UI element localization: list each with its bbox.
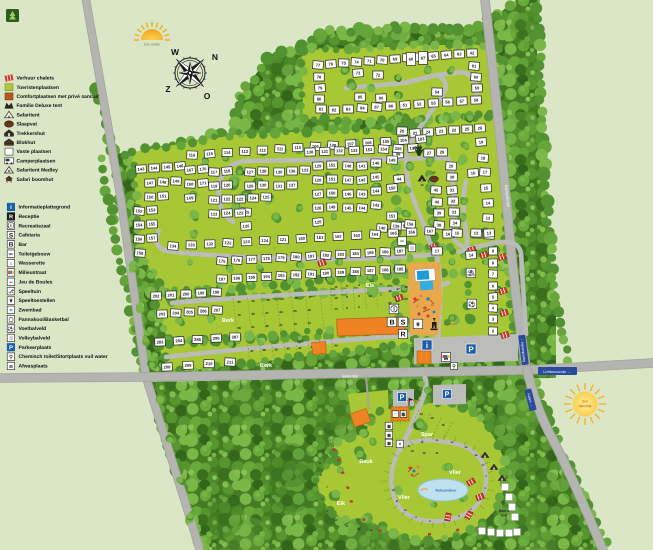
svg-text:Recreatiezaal: Recreatiezaal [19, 223, 52, 229]
svg-text:Toeristenplaatsen: Toeristenplaatsen [17, 85, 59, 91]
svg-text:Parkeerplaats: Parkeerplaats [19, 345, 52, 351]
svg-text:Natuurvijver: Natuurvijver [436, 489, 458, 493]
svg-text:142: 142 [358, 177, 366, 182]
svg-text:185: 185 [367, 250, 375, 255]
svg-text:284: 284 [175, 338, 183, 343]
svg-text:155: 155 [148, 221, 156, 226]
svg-text:Speeltoestellen: Speeltoestellen [19, 298, 56, 304]
svg-text:146: 146 [176, 163, 184, 169]
svg-text:●●: ●● [9, 280, 13, 284]
svg-text:78: 78 [317, 74, 322, 79]
svg-text:Eik: Eik [337, 501, 346, 507]
svg-text:Safari boomhut: Safari boomhut [17, 177, 54, 183]
svg-text:145: 145 [164, 164, 172, 169]
svg-text:160: 160 [298, 236, 306, 242]
svg-text:127: 127 [314, 191, 322, 196]
svg-text:24: 24 [279, 310, 283, 314]
svg-text:111: 111 [277, 146, 284, 151]
svg-text:123: 123 [236, 210, 244, 215]
svg-text:105: 105 [382, 139, 390, 144]
svg-text:187: 187 [367, 268, 375, 273]
svg-text:○: ○ [394, 412, 397, 417]
svg-text:S: S [9, 232, 14, 239]
svg-text:Safaritent: Safaritent [17, 112, 40, 118]
svg-text:56: 56 [445, 99, 450, 104]
svg-text:♕: ♕ [9, 298, 13, 303]
svg-text:152: 152 [329, 162, 337, 167]
svg-text:123: 123 [210, 211, 218, 216]
svg-text:285: 285 [194, 337, 202, 342]
svg-text:28: 28 [266, 298, 270, 302]
svg-text:141: 141 [358, 163, 366, 168]
svg-text:129: 129 [247, 183, 255, 188]
svg-text:209: 209 [184, 363, 192, 368]
svg-text:51: 51 [396, 299, 400, 303]
svg-text:130: 130 [260, 182, 268, 187]
svg-text:Volleybalveld: Volleybalveld [19, 336, 51, 342]
svg-text:ⓘ: ⓘ [391, 305, 398, 314]
svg-text:Vaste plaatsen: Vaste plaatsen [17, 149, 52, 155]
svg-text:178: 178 [263, 256, 271, 261]
svg-text:11: 11 [435, 451, 439, 455]
svg-text:200: 200 [183, 291, 191, 296]
svg-text:Speeltuin: Speeltuin [19, 289, 42, 295]
svg-text:155: 155 [395, 146, 403, 152]
svg-text:27: 27 [427, 150, 432, 155]
svg-text:42: 42 [432, 171, 436, 175]
svg-text:Verhuur chalets: Verhuur chalets [17, 76, 55, 82]
svg-text:⚲: ⚲ [452, 364, 456, 370]
svg-text:34: 34 [251, 299, 255, 303]
svg-text:177: 177 [248, 257, 256, 262]
svg-text:14: 14 [419, 412, 423, 416]
svg-text:194: 194 [263, 274, 271, 279]
svg-text:156: 156 [135, 236, 143, 241]
svg-text:Z: Z [165, 84, 170, 94]
svg-text:B: B [9, 242, 14, 249]
svg-text:121: 121 [210, 197, 218, 202]
svg-text:40: 40 [286, 347, 290, 351]
svg-text:R: R [9, 214, 13, 220]
svg-text:●●: ●● [400, 239, 404, 243]
svg-text:32: 32 [451, 198, 456, 203]
svg-text:186: 186 [382, 249, 390, 254]
svg-text:Spar: Spar [421, 432, 434, 438]
svg-text:26: 26 [412, 146, 416, 150]
svg-text:12: 12 [334, 296, 338, 300]
svg-text:151: 151 [329, 176, 337, 181]
svg-text:Rent a: Rent a [499, 509, 509, 513]
svg-text:Afwasplaats: Afwasplaats [19, 364, 48, 370]
svg-text:148: 148 [344, 163, 352, 168]
svg-text:125: 125 [262, 194, 270, 199]
svg-text:30: 30 [251, 312, 255, 316]
svg-text:36: 36 [237, 326, 241, 330]
svg-text:156: 156 [406, 221, 414, 227]
svg-text:195: 195 [248, 275, 256, 280]
svg-text:143: 143 [137, 166, 145, 171]
svg-text:147: 147 [147, 180, 155, 185]
svg-text:46: 46 [388, 289, 392, 293]
svg-text:18: 18 [307, 308, 311, 312]
svg-text:120: 120 [224, 182, 232, 187]
svg-text:82: 82 [332, 107, 337, 112]
svg-text:14: 14 [307, 321, 311, 325]
svg-text:80: 80 [317, 96, 322, 101]
svg-text:131: 131 [321, 149, 329, 154]
svg-text:168: 168 [186, 181, 194, 186]
svg-text:▢: ▢ [8, 317, 13, 323]
svg-text:Beuk: Beuk [359, 459, 373, 465]
svg-text:Berk: Berk [260, 363, 273, 369]
svg-text:Els: Els [366, 283, 374, 289]
svg-text:⚲: ⚲ [9, 354, 13, 360]
svg-text:39: 39 [437, 210, 442, 215]
svg-text:205: 205 [186, 309, 194, 314]
svg-text:114: 114 [224, 150, 231, 155]
svg-text:O: O [204, 91, 211, 101]
svg-text:179: 179 [278, 255, 286, 261]
svg-text:W: W [171, 47, 180, 57]
svg-text:128: 128 [260, 168, 268, 173]
svg-text:204: 204 [172, 310, 180, 315]
svg-text:59: 59 [475, 85, 480, 90]
svg-text:145: 145 [345, 205, 353, 210]
svg-text:Chemisch toilet/Stortplaats vu: Chemisch toilet/Stortplaats vuil water [19, 354, 108, 360]
svg-text:Berk: Berk [222, 318, 235, 324]
svg-text:P: P [9, 344, 13, 351]
svg-text:211: 211 [227, 359, 235, 364]
svg-text:104: 104 [400, 137, 408, 143]
svg-text:133: 133 [188, 242, 196, 247]
svg-text:39: 39 [274, 347, 278, 351]
svg-text:48: 48 [404, 285, 408, 289]
svg-text:283: 283 [157, 339, 165, 344]
svg-text:81: 81 [319, 106, 324, 111]
svg-text:▦: ▦ [387, 440, 391, 445]
svg-text:207: 207 [213, 307, 221, 312]
svg-text:175: 175 [218, 258, 226, 264]
svg-text:opkomst: opkomst [579, 404, 592, 408]
svg-text:23: 23 [280, 297, 284, 301]
svg-text:189: 189 [337, 270, 345, 275]
svg-text:72: 72 [376, 72, 381, 77]
svg-text:165: 165 [390, 231, 398, 236]
svg-text:180: 180 [293, 254, 301, 260]
svg-text:Comfortplaatsen met privé sani: Comfortplaatsen met privé sanitair [17, 94, 100, 100]
svg-text:i: i [426, 341, 428, 350]
svg-text:116: 116 [189, 152, 196, 157]
svg-text:183: 183 [337, 252, 345, 257]
svg-text:Slaapvat: Slaapvat [17, 122, 38, 128]
svg-text:22: 22 [452, 127, 457, 132]
svg-text:121: 121 [280, 237, 288, 242]
svg-text:191: 191 [307, 271, 315, 276]
svg-text:41: 41 [298, 346, 302, 350]
svg-text:P: P [468, 345, 474, 354]
svg-text:153: 153 [148, 207, 156, 212]
svg-text:▦: ▦ [387, 423, 391, 428]
svg-text:⚽: ⚽ [7, 325, 14, 332]
svg-text:119: 119 [211, 183, 219, 188]
svg-text:153: 153 [365, 147, 373, 152]
svg-text:146: 146 [373, 160, 381, 165]
svg-text:103: 103 [417, 136, 425, 142]
svg-text:47: 47 [396, 287, 400, 291]
svg-text:154: 154 [380, 146, 388, 152]
svg-text:Familie Deluxe tent: Familie Deluxe tent [17, 103, 63, 109]
svg-text:32: 32 [294, 296, 298, 300]
svg-text:133: 133 [302, 167, 310, 172]
svg-text:143: 143 [372, 202, 380, 207]
svg-text:167: 167 [426, 228, 434, 233]
svg-text:19: 19 [293, 322, 297, 326]
svg-text:🏐: 🏐 [9, 335, 14, 340]
svg-text:123: 123 [243, 239, 251, 244]
svg-text:⛱: ⛱ [467, 269, 475, 277]
svg-text:146: 146 [344, 191, 352, 196]
svg-text:117: 117 [211, 169, 219, 174]
svg-text:176: 176 [233, 257, 241, 263]
svg-text:169: 169 [186, 195, 194, 200]
svg-text:Toiletgebouw: Toiletgebouw [19, 251, 51, 257]
svg-text:67: 67 [421, 55, 426, 60]
svg-text:⎇: ⎇ [8, 289, 14, 295]
svg-text:63: 63 [457, 51, 462, 56]
svg-text:Camperplaatsen: Camperplaatsen [17, 158, 56, 164]
svg-text:Trekkershut: Trekkershut [17, 131, 46, 137]
svg-text:132: 132 [206, 241, 214, 246]
svg-text:110: 110 [294, 145, 302, 150]
svg-text:≌: ≌ [9, 364, 13, 370]
svg-text:Milieustraat: Milieustraat [19, 270, 47, 276]
svg-text:127: 127 [246, 169, 254, 174]
svg-text:152: 152 [135, 208, 143, 214]
svg-text:144: 144 [358, 205, 366, 211]
svg-text:150: 150 [388, 185, 396, 191]
svg-text:44: 44 [334, 343, 338, 347]
svg-text:27: 27 [265, 311, 269, 315]
svg-text:157: 157 [148, 235, 156, 240]
svg-text:139: 139 [392, 223, 400, 229]
svg-text:167: 167 [186, 167, 194, 173]
svg-text:⚽: ⚽ [467, 300, 476, 308]
svg-text:206: 206 [200, 308, 208, 313]
svg-text:17: 17 [308, 295, 312, 299]
svg-text:Zwembad: Zwembad [19, 307, 42, 313]
svg-text:112: 112 [259, 148, 266, 153]
svg-text:150: 150 [147, 194, 155, 199]
svg-text:11: 11 [334, 285, 338, 289]
svg-text:Vlier: Vlier [449, 470, 462, 476]
svg-text:208: 208 [163, 364, 171, 369]
svg-text:15: 15 [430, 416, 434, 420]
svg-text:P: P [400, 393, 405, 402]
svg-text:210: 210 [206, 361, 214, 366]
svg-text:107: 107 [347, 141, 355, 146]
svg-text:Cafetaria: Cafetaria [19, 233, 41, 239]
svg-text:25: 25 [465, 126, 470, 131]
svg-text:286: 286 [213, 336, 221, 341]
svg-text:170: 170 [199, 166, 207, 171]
svg-text:129: 129 [315, 163, 323, 168]
svg-text:○: ○ [9, 261, 12, 267]
svg-text:▦: ▦ [387, 432, 391, 437]
svg-text:136: 136 [289, 169, 297, 174]
svg-text:131: 131 [276, 183, 284, 188]
svg-text:188: 188 [352, 269, 360, 274]
svg-text:149: 149 [329, 204, 337, 209]
svg-text:171: 171 [199, 180, 207, 186]
svg-text:151: 151 [159, 193, 167, 198]
svg-text:43: 43 [420, 183, 424, 187]
svg-text:187: 187 [397, 248, 405, 253]
svg-text:149: 149 [388, 157, 396, 162]
svg-text:124: 124 [223, 210, 231, 215]
svg-text:ⓘ: ⓘ [8, 222, 15, 230]
svg-text:137: 137 [289, 182, 297, 187]
svg-text:148: 148 [159, 179, 167, 184]
svg-text:Bar: Bar [19, 242, 27, 248]
svg-text:149: 149 [172, 178, 180, 183]
svg-text:Beterdijk: Beterdijk [342, 373, 358, 378]
svg-text:54: 54 [435, 89, 440, 94]
svg-text:126: 126 [315, 205, 323, 210]
svg-text:13: 13 [334, 307, 338, 311]
svg-text:181: 181 [307, 253, 315, 259]
svg-text:Voetbalveld: Voetbalveld [19, 326, 47, 332]
svg-text:Jeu de Boules: Jeu de Boules [19, 279, 53, 285]
svg-text:140: 140 [378, 225, 386, 230]
svg-text:133: 133 [351, 148, 359, 153]
svg-text:B: B [389, 320, 394, 327]
svg-text:Zon onder: Zon onder [144, 43, 161, 47]
svg-text:197: 197 [218, 276, 226, 281]
svg-text:35: 35 [237, 300, 241, 304]
svg-text:203: 203 [158, 311, 166, 316]
svg-text:10: 10 [368, 294, 372, 298]
svg-text:37: 37 [250, 349, 254, 353]
svg-text:144: 144 [373, 188, 381, 193]
svg-text:151: 151 [389, 213, 397, 218]
svg-text:♕: ♕ [416, 322, 421, 328]
svg-text:147: 147 [344, 177, 352, 182]
svg-text:115: 115 [206, 151, 214, 157]
svg-text:134: 134 [169, 243, 177, 249]
svg-text:🏐: 🏐 [410, 245, 415, 250]
svg-text:113: 113 [241, 149, 249, 154]
svg-text:▼: ▼ [398, 441, 402, 446]
svg-text:standbeeld: standbeeld [444, 323, 457, 326]
svg-text:Vlier: Vlier [398, 495, 411, 501]
svg-text:13: 13 [410, 449, 414, 453]
svg-text:85: 85 [358, 94, 363, 99]
svg-text:126: 126 [242, 223, 250, 228]
svg-text:Informatieplattegrond: Informatieplattegrond [19, 205, 71, 211]
svg-text:201: 201 [168, 292, 176, 297]
svg-text:17: 17 [435, 248, 440, 253]
svg-text:196: 196 [233, 276, 241, 281]
svg-text:182: 182 [322, 252, 330, 258]
svg-text:163: 163 [353, 233, 361, 238]
svg-text:186: 186 [382, 267, 390, 272]
svg-text:202: 202 [153, 293, 161, 298]
svg-text:150: 150 [329, 190, 337, 195]
svg-text:161: 161 [316, 235, 324, 240]
svg-text:12: 12 [422, 451, 426, 455]
svg-text:21: 21 [279, 323, 283, 327]
svg-text:124: 124 [250, 195, 258, 200]
svg-text:N: N [212, 52, 218, 62]
svg-text:122: 122 [224, 240, 232, 246]
svg-text:162: 162 [335, 234, 343, 239]
svg-text:Wasserette: Wasserette [19, 261, 46, 267]
svg-text:tent: tent [501, 514, 508, 518]
svg-text:158: 158 [136, 250, 144, 256]
svg-text:145: 145 [372, 174, 380, 179]
svg-text:38: 38 [262, 348, 266, 352]
svg-text:132: 132 [336, 148, 344, 153]
svg-text:31: 31 [251, 325, 255, 329]
svg-text:106: 106 [365, 140, 373, 145]
svg-text:166: 166 [408, 229, 416, 234]
svg-text:193: 193 [278, 273, 286, 279]
svg-text:198: 198 [212, 289, 220, 294]
svg-text:118: 118 [224, 168, 232, 174]
svg-text:24: 24 [426, 129, 431, 134]
svg-text:50: 50 [404, 297, 408, 301]
svg-text:25: 25 [293, 309, 297, 313]
svg-text:83: 83 [346, 106, 351, 111]
svg-text:15: 15 [237, 313, 241, 317]
svg-text:143: 143 [358, 191, 366, 196]
svg-text:16: 16 [441, 423, 445, 427]
svg-text:P: P [445, 390, 450, 399]
svg-text:wc: wc [8, 252, 14, 256]
svg-text:125: 125 [314, 219, 322, 225]
svg-text:Zon: Zon [582, 400, 588, 404]
svg-text:199: 199 [198, 290, 206, 295]
svg-text:185: 185 [397, 266, 405, 271]
svg-text:128: 128 [314, 177, 322, 182]
svg-text:144: 144 [151, 165, 159, 170]
svg-text:S: S [401, 320, 406, 327]
svg-text:Lichtenvoorde →: Lichtenvoorde → [543, 370, 570, 374]
svg-text:184: 184 [352, 251, 360, 256]
svg-text:192: 192 [293, 272, 301, 277]
svg-text:122: 122 [224, 196, 232, 201]
svg-text:88: 88 [388, 103, 393, 108]
svg-text:124: 124 [261, 238, 269, 243]
svg-text:Blokhut: Blokhut [17, 140, 36, 146]
svg-text:122: 122 [237, 196, 245, 201]
svg-text:Safaritent Medley: Safaritent Medley [17, 168, 59, 174]
svg-text:287: 287 [232, 334, 240, 339]
svg-text:164: 164 [371, 231, 379, 237]
svg-text:28: 28 [440, 149, 445, 154]
svg-text:R: R [400, 332, 405, 339]
svg-text:130: 130 [276, 169, 284, 174]
svg-text:190: 190 [322, 270, 330, 276]
svg-text:Receptie: Receptie [19, 214, 40, 220]
svg-text:Pannakooi/Basketbal: Pannakooi/Basketbal [19, 317, 70, 323]
svg-text:154: 154 [136, 222, 144, 227]
svg-text:138: 138 [307, 149, 315, 154]
svg-text:26: 26 [265, 324, 269, 328]
